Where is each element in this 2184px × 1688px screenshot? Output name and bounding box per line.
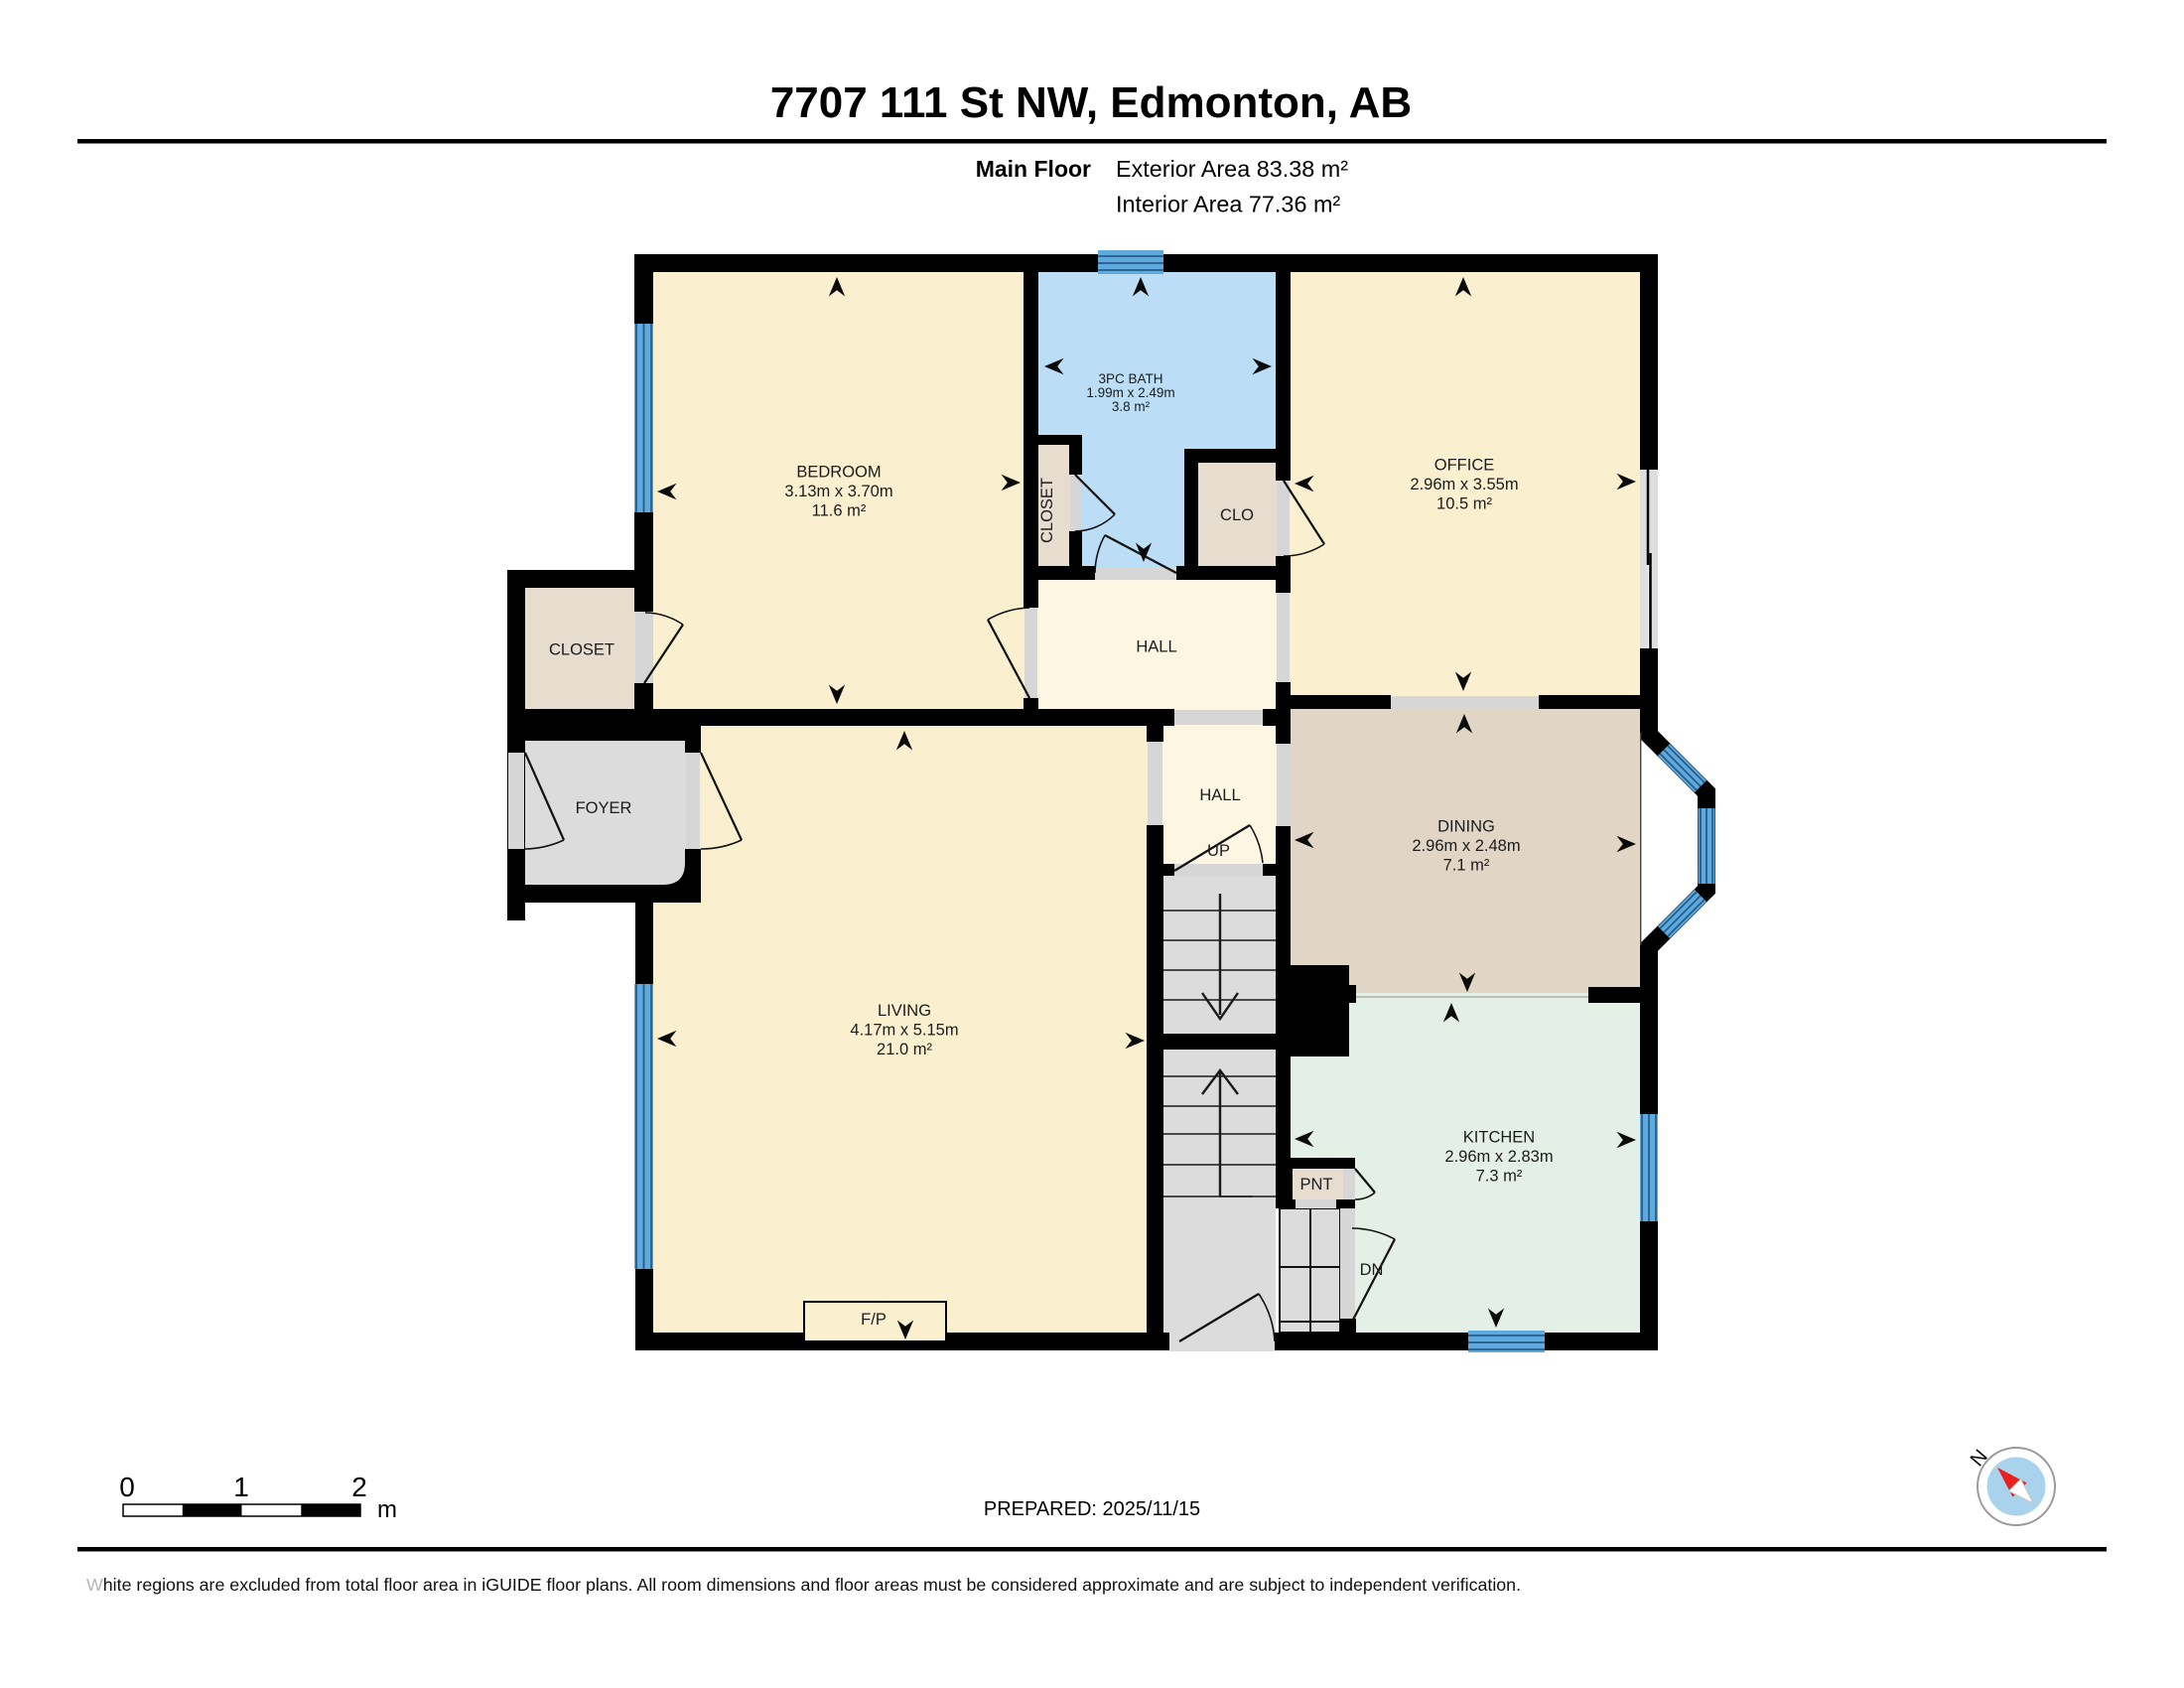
svg-text:HALL: HALL	[1136, 638, 1176, 656]
svg-text:Interior Area 77.36 m²: Interior Area 77.36 m²	[1116, 192, 1340, 217]
svg-text:2: 2	[351, 1472, 367, 1502]
svg-text:DN: DN	[1360, 1261, 1384, 1279]
svg-text:3PC BATH: 3PC BATH	[1098, 371, 1162, 386]
svg-text:11.6 m²: 11.6 m²	[812, 502, 867, 520]
svg-text:White regions are excluded fro: White regions are excluded from total fl…	[86, 1575, 1521, 1595]
svg-text:UP: UP	[1207, 842, 1230, 860]
svg-text:CLOSET: CLOSET	[549, 641, 614, 659]
svg-text:Main Floor: Main Floor	[976, 156, 1091, 182]
svg-text:2.96m x 2.48m: 2.96m x 2.48m	[1412, 837, 1520, 855]
svg-text:HALL: HALL	[1199, 786, 1240, 804]
svg-text:7.1 m²: 7.1 m²	[1443, 857, 1490, 875]
svg-text:PNT: PNT	[1300, 1176, 1333, 1194]
svg-text:PREPARED: 2025/11/15: PREPARED: 2025/11/15	[984, 1498, 1200, 1520]
svg-text:3.8 m²: 3.8 m²	[1112, 399, 1151, 414]
svg-text:KITCHEN: KITCHEN	[1463, 1129, 1535, 1147]
svg-text:10.5 m²: 10.5 m²	[1436, 495, 1492, 513]
svg-text:CLO: CLO	[1220, 506, 1254, 524]
svg-text:7.3 m²: 7.3 m²	[1476, 1168, 1523, 1186]
svg-text:CLOSET: CLOSET	[1038, 478, 1056, 543]
svg-text:21.0 m²: 21.0 m²	[877, 1041, 932, 1058]
svg-text:4.17m x 5.15m: 4.17m x 5.15m	[850, 1022, 958, 1040]
svg-text:1: 1	[233, 1472, 249, 1502]
svg-text:2.96m x 3.55m: 2.96m x 3.55m	[1410, 476, 1518, 493]
svg-text:BEDROOM: BEDROOM	[796, 464, 881, 482]
svg-text:3.13m x 3.70m: 3.13m x 3.70m	[784, 483, 892, 500]
svg-text:F/P: F/P	[861, 1311, 887, 1329]
svg-text:LIVING: LIVING	[878, 1002, 931, 1020]
svg-text:1.99m x 2.49m: 1.99m x 2.49m	[1086, 385, 1174, 400]
svg-text:0: 0	[119, 1472, 135, 1502]
svg-text:m: m	[377, 1496, 397, 1523]
svg-text:OFFICE: OFFICE	[1434, 457, 1495, 475]
svg-text:FOYER: FOYER	[576, 799, 632, 817]
svg-text:2.96m x 2.83m: 2.96m x 2.83m	[1444, 1148, 1553, 1166]
svg-text:Exterior Area 83.38 m²: Exterior Area 83.38 m²	[1116, 156, 1348, 182]
svg-text:7707 111 St NW, Edmonton, AB: 7707 111 St NW, Edmonton, AB	[770, 78, 1412, 127]
svg-text:DINING: DINING	[1437, 818, 1495, 836]
